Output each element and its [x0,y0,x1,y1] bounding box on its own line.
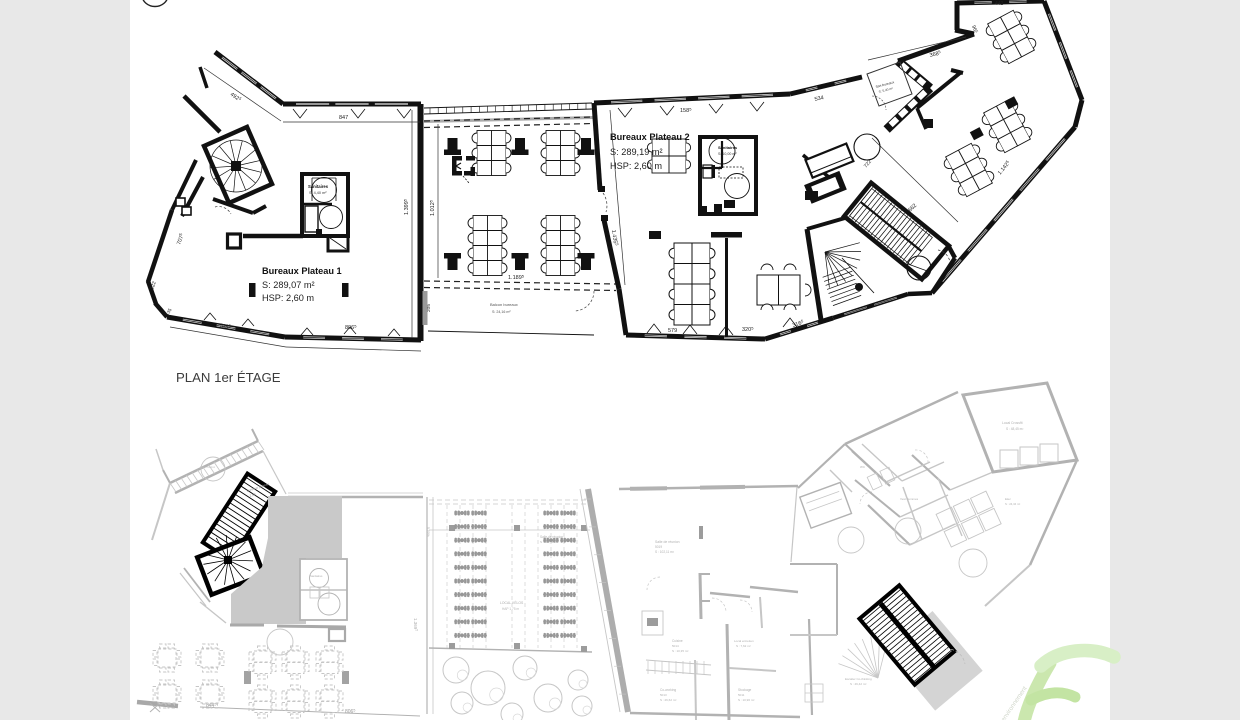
svg-text:5014: 5014 [672,644,679,648]
svg-text:Local entretien: Local entretien [734,639,754,643]
svg-text:S: 289,07 m²: S: 289,07 m² [262,280,315,290]
svg-text:S : 48,45 m²: S : 48,45 m² [1006,427,1023,431]
svg-text:HSP: 2,60 m: HSP: 2,60 m [262,293,314,303]
svg-text:Vest. femmes: Vest. femmes [900,497,919,501]
svg-text:Bureaux Plateau 1: Bureaux Plateau 1 [262,266,342,276]
svg-text:579: 579 [668,328,677,334]
svg-text:S : 102,11 m²: S : 102,11 m² [655,550,674,554]
svg-text:S: 10,00 m²: S: 10,00 m² [718,152,737,156]
svg-text:847: 847 [339,115,348,121]
svg-text:WC: WC [860,465,866,469]
svg-text:Escalier Co-thinking: Escalier Co-thinking [845,677,872,681]
svg-text:Cuisine: Cuisine [672,639,683,643]
svg-text:S: 24,16 m²: S: 24,16 m² [492,310,511,314]
svg-text:PLAN 1er ÉTAGE: PLAN 1er ÉTAGE [176,370,281,385]
svg-text:442: 442 [995,1,1004,7]
svg-text:5.00%: 5.00% [426,527,430,537]
svg-text:S : 102,11 m²: S : 102,11 m² [540,540,558,544]
svg-text:Stockage: Stockage [738,688,752,692]
svg-text:5019: 5019 [655,545,662,549]
svg-text:Sanitaires: Sanitaires [308,184,329,189]
svg-text:S : 24,34 m²: S : 24,34 m² [1005,502,1020,506]
svg-text:S : 7,62 m²: S : 7,62 m² [736,644,751,648]
svg-text:Bureaux Plateau 2: Bureaux Plateau 2 [610,132,690,142]
svg-text:Sanitaires: Sanitaires [718,145,738,150]
svg-text:HAP 1,75 m: HAP 1,75 m [502,607,519,611]
svg-text:Elec: Elec [1005,497,1011,501]
svg-text:HSP: 2,60 m: HSP: 2,60 m [610,161,662,171]
svg-text:Co-working: Co-working [660,688,676,692]
svg-text:S : 10,35 m²: S : 10,35 m² [672,649,688,653]
svg-text:Salle de réunion: Salle de réunion [655,540,680,544]
svg-text:Salle réunion: Salle réunion [200,465,216,469]
svg-text:Salle de réunion: Salle de réunion [540,535,563,539]
svg-text:Local Crossfit: Local Crossfit [1002,421,1023,425]
svg-text:Balcon bureaux: Balcon bureaux [490,302,518,307]
svg-text:205: 205 [426,304,432,312]
svg-text:S : 26,62 m²: S : 26,62 m² [660,698,676,702]
svg-text:S: 289,19 m²: S: 289,19 m² [610,147,663,157]
svg-text:Sanitaires: Sanitaires [310,574,323,578]
svg-text:5013: 5013 [660,693,667,697]
svg-text:5011: 5011 [738,693,745,697]
svg-text:S : 49,42 m²: S : 49,42 m² [850,682,866,686]
svg-text:S: 4,40 m²: S: 4,40 m² [309,191,327,195]
svg-text:S : 10,96 m²: S : 10,96 m² [738,698,754,702]
svg-text:LOCAL VÉLOS: LOCAL VÉLOS [500,600,524,605]
